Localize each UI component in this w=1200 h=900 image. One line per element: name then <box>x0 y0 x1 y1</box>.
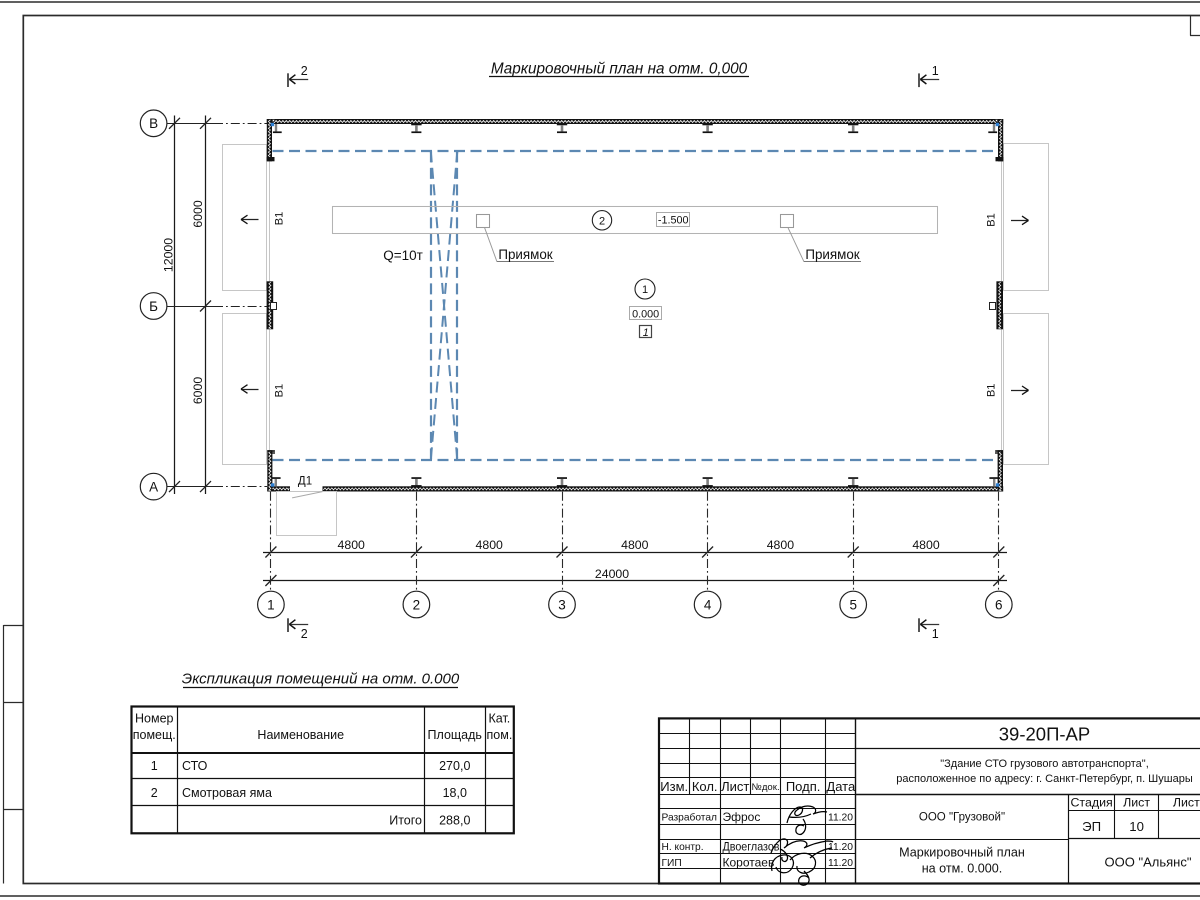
svg-text:Приямок: Приямок <box>805 247 859 262</box>
svg-text:Площадь: Площадь <box>428 728 482 742</box>
svg-text:Подп.: Подп. <box>786 779 821 794</box>
svg-text:2: 2 <box>599 215 605 227</box>
svg-text:Коротаев: Коротаев <box>723 855 775 869</box>
svg-text:Листов: Листов <box>1173 795 1200 809</box>
svg-text:Кат.: Кат. <box>489 711 511 725</box>
svg-text:пом.: пом. <box>487 728 513 742</box>
svg-text:помещ.: помещ. <box>133 728 176 742</box>
svg-text:11.20: 11.20 <box>828 813 853 824</box>
svg-text:11.20: 11.20 <box>828 858 853 869</box>
svg-text:39-20П-АР: 39-20П-АР <box>999 724 1090 745</box>
svg-text:А: А <box>149 479 158 494</box>
svg-text:расположенное по адресу: г. Са: расположенное по адресу: г. Санкт-Петерб… <box>896 773 1193 785</box>
svg-text:4: 4 <box>704 597 712 612</box>
svg-text:В1: В1 <box>273 212 285 225</box>
svg-text:2: 2 <box>301 64 308 78</box>
svg-text:Экспликация помещений на отм.: Экспликация помещений на отм. 0.000 <box>182 671 460 688</box>
svg-text:Изм.: Изм. <box>660 779 688 794</box>
svg-text:Маркировочный план: Маркировочный план <box>899 846 1025 860</box>
svg-text:4800: 4800 <box>338 538 366 552</box>
svg-text:12000: 12000 <box>162 238 176 272</box>
svg-text:0.000: 0.000 <box>632 308 659 320</box>
svg-text:ООО "Грузовой": ООО "Грузовой" <box>919 811 1005 823</box>
svg-text:ГИП: ГИП <box>662 858 682 869</box>
svg-text:6: 6 <box>995 597 1003 612</box>
svg-text:Наименование: Наименование <box>257 728 344 742</box>
svg-text:Q=10т: Q=10т <box>383 248 423 263</box>
svg-text:-1.500: -1.500 <box>658 215 689 227</box>
svg-text:5: 5 <box>849 597 857 612</box>
svg-text:2: 2 <box>413 597 421 612</box>
svg-text:10: 10 <box>1129 819 1144 834</box>
svg-text:1: 1 <box>643 327 649 339</box>
svg-text:ЭП: ЭП <box>1082 819 1101 834</box>
svg-text:СТО: СТО <box>182 759 208 773</box>
svg-text:4800: 4800 <box>912 538 940 552</box>
svg-text:1: 1 <box>151 759 158 773</box>
svg-text:Д1: Д1 <box>298 475 312 487</box>
svg-text:Смотровая яма: Смотровая яма <box>182 786 272 800</box>
svg-text:288,0: 288,0 <box>439 813 470 827</box>
svg-text:24000: 24000 <box>595 567 629 581</box>
svg-text:2: 2 <box>301 627 308 641</box>
svg-text:В1: В1 <box>985 384 997 397</box>
svg-text:18,0: 18,0 <box>443 786 467 800</box>
svg-text:В: В <box>149 116 158 131</box>
svg-text:6000: 6000 <box>191 200 205 228</box>
svg-text:1: 1 <box>932 64 939 78</box>
svg-text:4800: 4800 <box>621 538 649 552</box>
svg-text:Маркировочный план на отм. 0,0: Маркировочный план на отм. 0,000 <box>491 61 748 78</box>
svg-text:4800: 4800 <box>767 538 795 552</box>
svg-text:Эфрос: Эфрос <box>723 810 761 824</box>
svg-text:3: 3 <box>558 597 566 612</box>
svg-text:Номер: Номер <box>135 711 174 725</box>
svg-text:на отм. 0.000.: на отм. 0.000. <box>922 861 1003 875</box>
svg-text:Разработал: Разработал <box>662 812 718 824</box>
svg-text:Лист: Лист <box>1123 795 1150 809</box>
svg-text:В1: В1 <box>273 384 285 397</box>
svg-text:4800: 4800 <box>476 538 504 552</box>
svg-text:1: 1 <box>932 627 939 641</box>
svg-text:270,0: 270,0 <box>439 759 470 773</box>
svg-text:Приямок: Приямок <box>498 247 552 262</box>
svg-text:Н. контр.: Н. контр. <box>662 842 704 853</box>
svg-text:1: 1 <box>267 597 275 612</box>
svg-text:6000: 6000 <box>191 377 205 405</box>
svg-text:Б: Б <box>149 299 158 314</box>
svg-text:1: 1 <box>642 284 648 296</box>
svg-text:2: 2 <box>151 786 158 800</box>
svg-text:ООО "Альянс": ООО "Альянс" <box>1105 855 1192 870</box>
svg-text:Стадия: Стадия <box>1070 795 1112 809</box>
svg-text:Итого: Итого <box>389 813 422 827</box>
svg-text:В1: В1 <box>985 213 997 226</box>
svg-text:Кол.: Кол. <box>692 779 718 794</box>
svg-text:"Здание СТО грузового автотран: "Здание СТО грузового автотранспорта", <box>940 758 1149 770</box>
svg-text:№док.: №док. <box>752 782 780 793</box>
svg-text:Лист: Лист <box>721 779 749 794</box>
svg-text:Дата: Дата <box>826 779 856 794</box>
